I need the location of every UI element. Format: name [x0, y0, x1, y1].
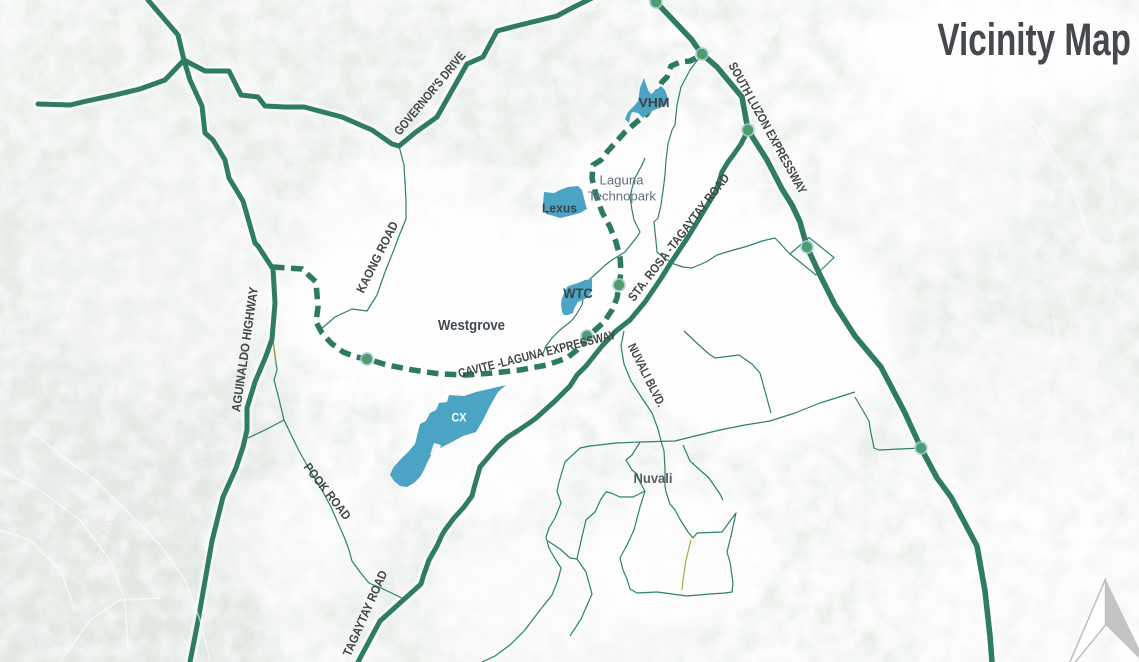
svg-text:Lexus: Lexus	[542, 201, 577, 216]
svg-text:Vicinity Map: Vicinity Map	[937, 15, 1131, 65]
svg-text:Nuvali: Nuvali	[634, 471, 673, 486]
svg-text:VHM: VHM	[639, 95, 670, 110]
svg-text:Westgrove: Westgrove	[438, 318, 505, 334]
svg-text:WTC: WTC	[563, 286, 593, 301]
svg-text:Technopark: Technopark	[588, 188, 656, 203]
svg-text:Laguna: Laguna	[599, 173, 644, 188]
svg-text:CX: CX	[452, 413, 467, 425]
